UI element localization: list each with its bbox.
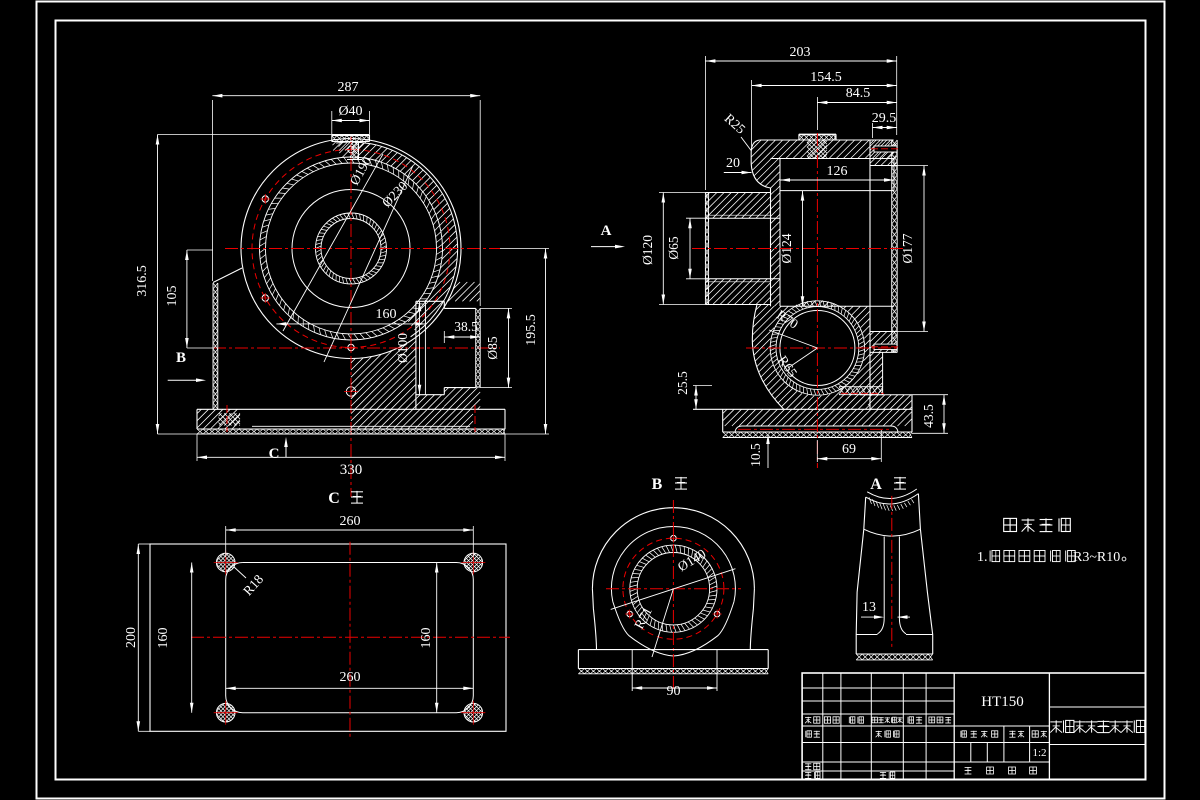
- svg-text:C: C: [328, 490, 340, 507]
- svg-text:Ø100: Ø100: [395, 333, 410, 363]
- svg-text:1:2: 1:2: [1032, 747, 1046, 759]
- svg-text:B: B: [176, 350, 186, 366]
- svg-text:38.5: 38.5: [454, 319, 478, 334]
- svg-text:316.5: 316.5: [135, 265, 150, 297]
- svg-text:287: 287: [338, 80, 359, 95]
- svg-text:160: 160: [419, 628, 434, 649]
- svg-text:105: 105: [165, 286, 180, 307]
- svg-text:B: B: [652, 476, 663, 493]
- svg-text:Ø120: Ø120: [640, 235, 655, 265]
- svg-text:200: 200: [124, 627, 139, 648]
- svg-text:20: 20: [726, 156, 740, 171]
- svg-text:HT150: HT150: [981, 694, 1024, 710]
- svg-text:69: 69: [842, 442, 856, 457]
- svg-text:R3~R10: R3~R10: [1073, 550, 1120, 565]
- svg-text:260: 260: [340, 514, 361, 529]
- svg-text:A: A: [601, 223, 612, 239]
- svg-text:A: A: [870, 476, 882, 493]
- svg-text:Ø40: Ø40: [338, 104, 362, 119]
- svg-text:10.5: 10.5: [748, 443, 763, 467]
- svg-text:C: C: [269, 446, 280, 462]
- svg-text:Ø124: Ø124: [779, 233, 794, 263]
- svg-text:13: 13: [862, 600, 876, 615]
- svg-text:84.5: 84.5: [846, 86, 871, 101]
- svg-text:1.: 1.: [977, 550, 988, 565]
- svg-text:Ø177: Ø177: [900, 233, 915, 263]
- svg-text:Ø85: Ø85: [485, 336, 500, 359]
- svg-text:90: 90: [667, 684, 681, 699]
- svg-text:160: 160: [156, 628, 171, 649]
- svg-text:126: 126: [827, 164, 848, 179]
- svg-text:330: 330: [340, 462, 363, 478]
- svg-text:154.5: 154.5: [810, 70, 842, 85]
- svg-text:203: 203: [790, 45, 811, 60]
- svg-text:43.5: 43.5: [921, 404, 936, 428]
- svg-text:160: 160: [376, 307, 397, 322]
- svg-text:25.5: 25.5: [675, 371, 690, 395]
- svg-text:195.5: 195.5: [524, 314, 539, 346]
- svg-text:260: 260: [340, 670, 361, 685]
- svg-text:29.5: 29.5: [872, 111, 897, 126]
- svg-text:Ø65: Ø65: [666, 236, 681, 259]
